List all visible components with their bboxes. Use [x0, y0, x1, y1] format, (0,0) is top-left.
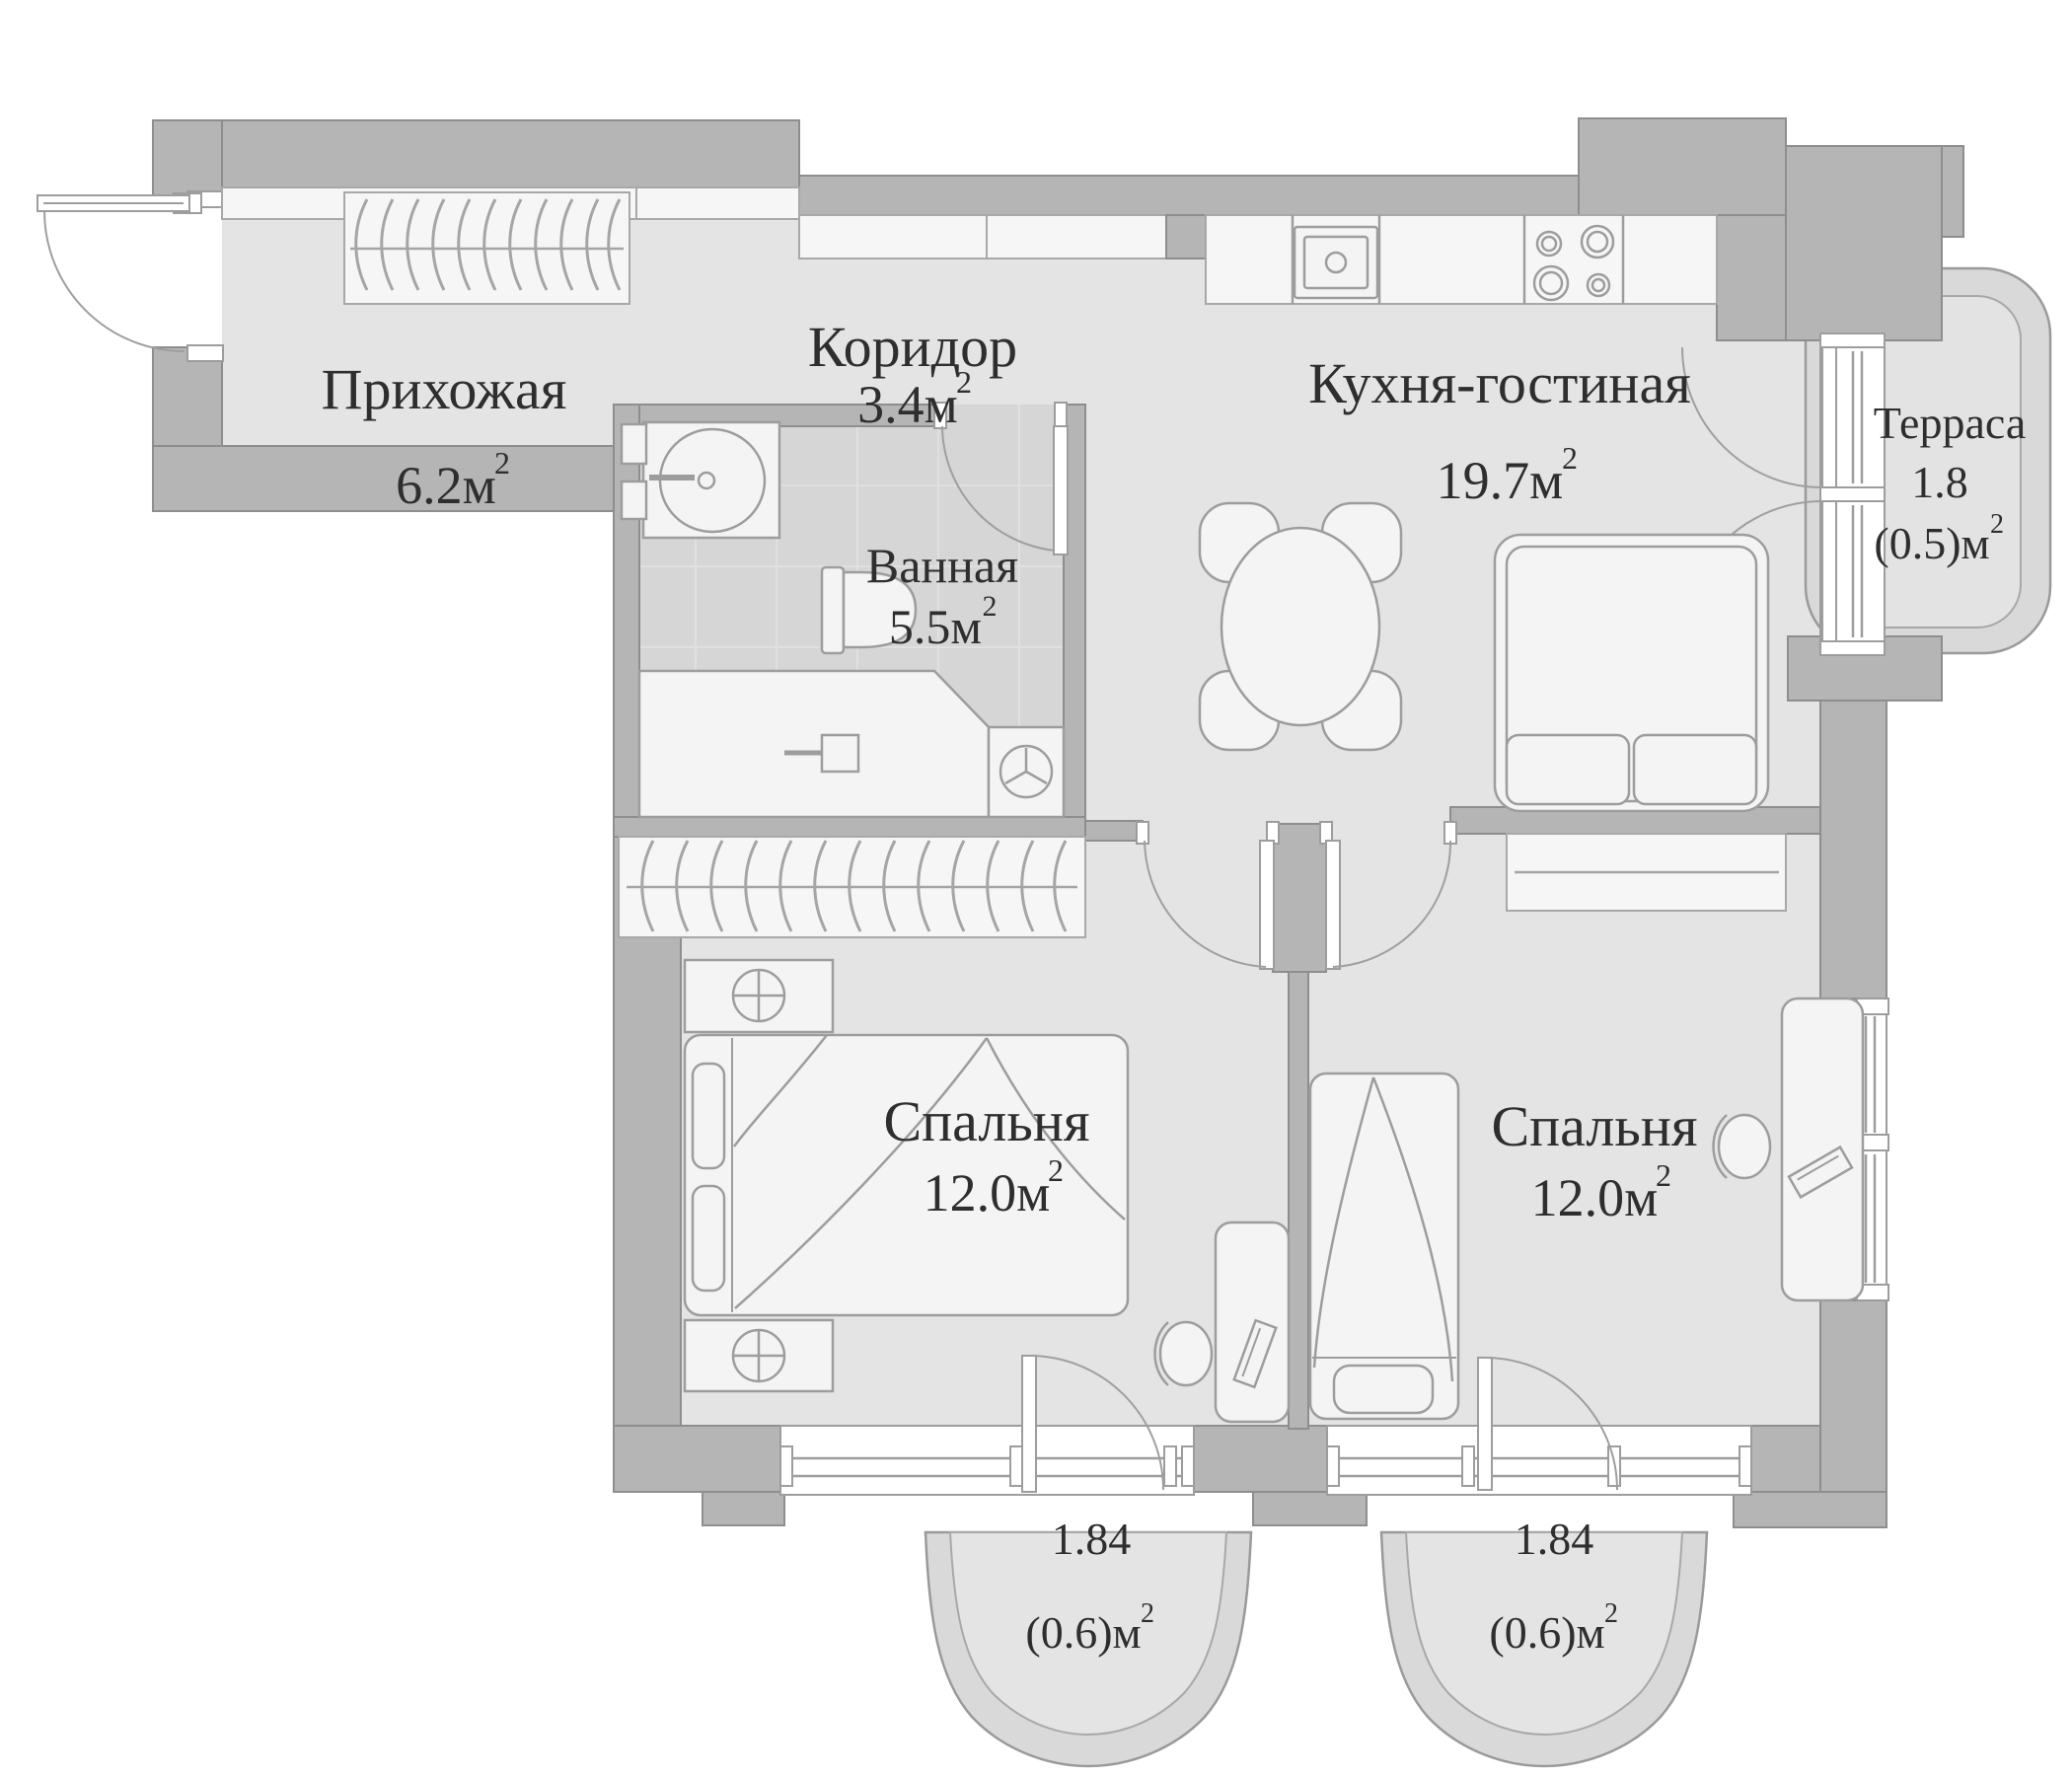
- bathroom-wall-unit-2: [622, 481, 646, 519]
- room-area-balcony1: 1.84: [1052, 1514, 1132, 1564]
- entrance-door-arc: [44, 211, 185, 351]
- room-label-hallway: Прихожая: [322, 357, 567, 421]
- room-area-bedroom1: 12.0м: [924, 1163, 1051, 1222]
- bedroom1-wardrobe: [619, 837, 1085, 937]
- window-bedroom1-balcony: [780, 1426, 1194, 1495]
- room-area-terrace: 1.8: [1911, 457, 1968, 507]
- terrace-jamb-bottom: [1820, 641, 1885, 655]
- wall-bottom-right: [1751, 1426, 1820, 1492]
- wall-bottom-left: [614, 1426, 780, 1492]
- room-area-kitchen-living: 19.7м: [1437, 451, 1564, 510]
- wall-bathroom-left: [614, 405, 639, 834]
- desk-bedroom2: [1782, 999, 1863, 1300]
- bedroom2-door-jamb-right: [1444, 822, 1456, 844]
- bathroom-door-leaf: [1054, 426, 1068, 555]
- wall-terrace-header: [1786, 146, 1942, 340]
- wall-bottom-middle: [1194, 1426, 1327, 1492]
- wall-kitchen-top-raised: [1579, 118, 1786, 215]
- single-bed: [1310, 1073, 1458, 1419]
- room-area-corridor: 3.4м: [857, 375, 958, 434]
- wall-pillar-between-doors: [1273, 824, 1326, 972]
- kitchen-sink: [1295, 227, 1377, 298]
- room-area-balcony2: 1.84: [1515, 1514, 1594, 1564]
- room-area-bedroom2: 12.0м: [1531, 1168, 1659, 1227]
- dining-table: [1221, 528, 1379, 725]
- terrace-door-leaf-2: [1822, 501, 1836, 641]
- room-area-sup: 2: [494, 445, 510, 481]
- terrace-jamb-middle: [1820, 487, 1885, 501]
- wall-tab-2: [1253, 1492, 1367, 1525]
- wall-corridor-top: [799, 176, 1579, 215]
- room-area-sup: 2: [1990, 509, 2004, 540]
- room-label-bedroom1: Спальня: [883, 1089, 1089, 1153]
- balcony1-door-leaf: [1022, 1356, 1036, 1492]
- hallway-wardrobe: [344, 192, 629, 304]
- wall-tab-3: [1734, 1492, 1887, 1527]
- room-area-sup: 2: [956, 364, 972, 400]
- room-label-terrace: Терраса: [1874, 398, 2027, 448]
- wall-tab-1: [703, 1492, 784, 1525]
- room-area-bathroom: 5.5м: [889, 599, 982, 654]
- pillow: [1334, 1366, 1433, 1413]
- bedroom2-door-leaf: [1326, 841, 1340, 969]
- wall-right-lower: [1820, 1300, 1887, 1492]
- wall-stub-bedroom1-door: [1085, 821, 1143, 841]
- wall-bathroom-bottom: [614, 817, 1085, 837]
- room-area2-balcony2: (0.6)м: [1489, 1607, 1604, 1658]
- pillow: [693, 1064, 724, 1168]
- bedroom1-door-jamb-left: [1137, 822, 1148, 844]
- room-label-kitchen-living: Кухня-гостиная: [1308, 351, 1691, 415]
- sofa: [1495, 535, 1768, 811]
- room-area2-terrace: (0.5)м: [1874, 518, 1989, 568]
- room-label-bathroom: Ванная: [866, 538, 1018, 593]
- room-area2-balcony1: (0.6)м: [1025, 1607, 1141, 1658]
- shower: [639, 671, 989, 817]
- bathroom-wall-unit-1: [622, 424, 646, 464]
- bathroom-door-jamb-right: [1055, 403, 1067, 428]
- room-area-sup: 2: [983, 590, 998, 623]
- wall-terrace-header-notch: [1942, 146, 1963, 237]
- wall-hallway-top: [153, 120, 799, 187]
- nightstand-bottom: [685, 1320, 833, 1391]
- floor-plan-svg: Прихожая 6.2м 2 Коридор 3.4м 2 Кухня-гос…: [0, 0, 2072, 1776]
- bathroom-sink: [643, 422, 779, 538]
- wall-kitchen-right-corner: [1717, 215, 1786, 340]
- room-area-sup: 2: [1604, 1598, 1618, 1629]
- wall-bedroom-partition: [1289, 972, 1308, 1429]
- wall-right-upper: [1820, 701, 1887, 999]
- desk-bedroom1: [1216, 1222, 1289, 1422]
- room-area-sup: 2: [1656, 1157, 1671, 1193]
- window-bedroom2-balcony: [1327, 1426, 1751, 1495]
- terrace-door-leaf-1: [1822, 347, 1836, 487]
- entrance-jamb-bottom: [187, 345, 223, 361]
- pillow: [693, 1186, 724, 1291]
- room-area-sup: 2: [1562, 440, 1578, 476]
- room-label-bedroom2: Спальня: [1491, 1094, 1697, 1158]
- nightstand-top: [685, 960, 833, 1032]
- washing-machine: [989, 727, 1064, 817]
- room-area-sup: 2: [1048, 1152, 1064, 1188]
- room-area-hallway: 6.2м: [396, 456, 496, 515]
- room-label-corridor: Коридор: [808, 315, 1017, 379]
- balcony2-door-leaf: [1478, 1358, 1492, 1490]
- kitchen-band-notch: [1166, 215, 1206, 259]
- entrance-door: [37, 191, 223, 361]
- terrace-jamb-top: [1820, 333, 1885, 347]
- bedroom1-door-leaf: [1260, 841, 1274, 969]
- kitchen-counter: [1206, 215, 1717, 304]
- room-area-sup: 2: [1141, 1598, 1154, 1629]
- corridor-top-band: [799, 215, 1166, 259]
